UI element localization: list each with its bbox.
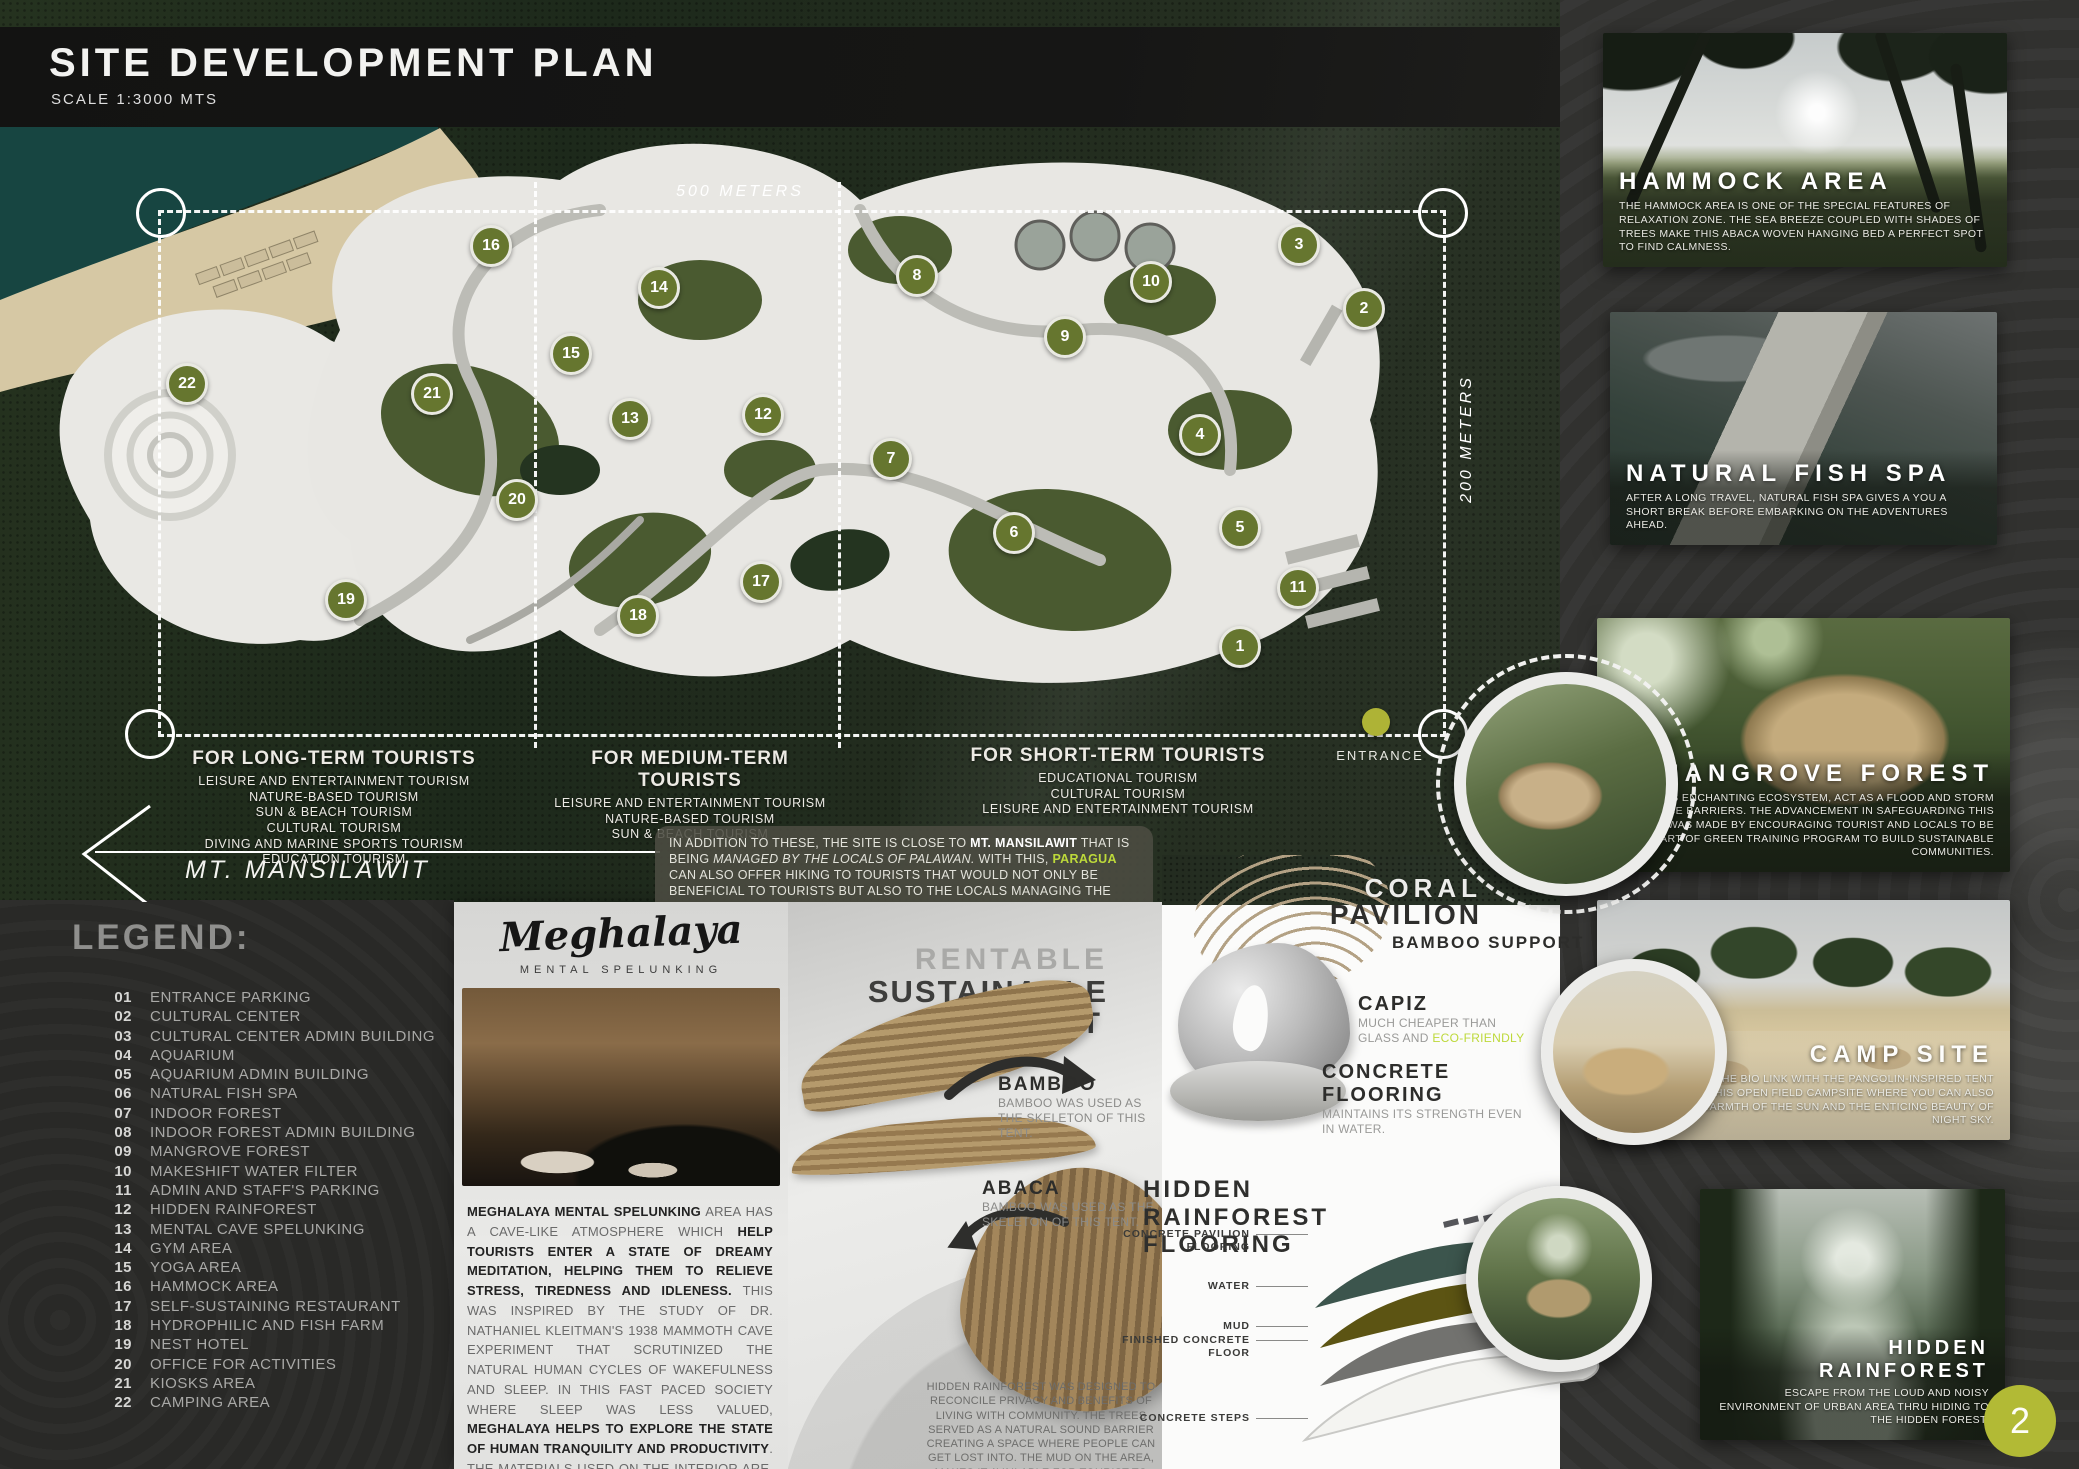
zone-tourism-line: NATURE-BASED TOURISM: [540, 812, 840, 828]
legend-title: LEGEND:: [72, 918, 251, 958]
material-name: CAPIZ: [1358, 993, 1538, 1016]
survey-corner-marker: [136, 188, 186, 238]
zone-title: FOR LONG-TERM TOURISTS: [184, 748, 484, 770]
layer-label: WATER: [1100, 1280, 1250, 1293]
dimension-label-top: 500 METERS: [640, 183, 840, 201]
bamboo-support-label: BAMBOO SUPPORT: [1392, 933, 1584, 953]
material-name: CONCRETE FLOORING: [1322, 1061, 1522, 1107]
legend-item-number: 08: [0, 1123, 132, 1142]
coral-title-top: CORAL: [1330, 875, 1482, 901]
legend-item: 12 HIDDEN RAINFOREST: [0, 1200, 454, 1219]
layer-label: CONCRETE STEPS: [1100, 1412, 1250, 1425]
legend-item: 06 NATURAL FISH SPA: [0, 1084, 454, 1103]
plan-number-marker: 6: [993, 512, 1035, 554]
camp-tent-inset-photo: [1541, 959, 1727, 1145]
zone-tourism-line: LEISURE AND ENTERTAINMENT TOURISM: [184, 774, 484, 790]
legend-item-label: INDOOR FOREST ADMIN BUILDING: [132, 1123, 415, 1142]
legend-item-number: 21: [0, 1374, 132, 1393]
panel-title: NATURAL FISH SPA: [1626, 460, 1981, 488]
zone-title: FOR SHORT-TERM TOURISTS: [968, 745, 1268, 767]
legend-item-number: 17: [0, 1297, 132, 1316]
legend-item: 10 MAKESHIFT WATER FILTER: [0, 1162, 454, 1181]
dimension-label-right: 200 METERS: [1458, 364, 1476, 514]
legend-item-number: 20: [0, 1355, 132, 1374]
zone-tourism-line: CULTURAL TOURISM: [184, 821, 484, 837]
meghalaya-script-title: Meghalaya: [453, 904, 788, 963]
capiz-label: CAPIZ MUCH CHEAPER THAN GLASS AND ECO-FR…: [1358, 993, 1538, 1046]
legend-item-number: 16: [0, 1277, 132, 1296]
plan-number-marker: 11: [1277, 567, 1319, 609]
legend-item-label: HYDROPHILIC AND FISH FARM: [132, 1316, 384, 1335]
legend-list: 01 ENTRANCE PARKING 02 CULTURAL CENTER 0…: [0, 988, 454, 1413]
site-development-poster: 500 METERS 200 METERS 1 2 3 4 5 6 7 8 9 …: [0, 0, 2079, 1469]
legend-item-number: 02: [0, 1007, 132, 1026]
legend-item: 15 YOGA AREA: [0, 1258, 454, 1277]
survey-corner-marker: [125, 709, 175, 759]
bamboo-material-label: BAMBOO BAMBOO WAS USED AS THE SKELETON O…: [998, 1074, 1162, 1141]
panel-caption: HIDDEN RAINFOREST ESCAPE FROM THE LOUD A…: [1700, 1327, 2005, 1440]
legend-item-label: SELF-SUSTAINING RESTAURANT: [132, 1297, 401, 1316]
layer-label: CONCRETE PAVILION FLOORING: [1100, 1228, 1250, 1254]
legend-item: 22 CAMPING AREA: [0, 1393, 454, 1412]
legend-item: 09 MANGROVE FOREST: [0, 1142, 454, 1161]
mountain-arrow-icon: [70, 796, 160, 902]
legend-item-label: GYM AREA: [132, 1239, 232, 1258]
site-plan-map: 500 METERS 200 METERS 1 2 3 4 5 6 7 8 9 …: [0, 0, 1560, 902]
plan-number-marker: 14: [638, 267, 680, 309]
legend-item-number: 03: [0, 1027, 132, 1046]
mountain-label: MT. MANSILAWIT: [185, 856, 430, 885]
legend-item-number: 18: [0, 1316, 132, 1335]
plan-number-marker: 10: [1130, 261, 1172, 303]
panel-caption: HAMMOCK AREA THE HAMMOCK AREA IS ONE OF …: [1603, 158, 2007, 267]
material-caption: MUCH CHEAPER THAN GLASS AND ECO-FRIENDLY: [1358, 1016, 1538, 1046]
legend-item-label: NEST HOTEL: [132, 1335, 249, 1354]
legend-item-label: MANGROVE FOREST: [132, 1142, 310, 1161]
legend-item: 17 SELF-SUSTAINING RESTAURANT: [0, 1297, 454, 1316]
legend-item-label: AQUARIUM ADMIN BUILDING: [132, 1065, 369, 1084]
hidden-rainforest-panel: HIDDEN RAINFOREST ESCAPE FROM THE LOUD A…: [1700, 1189, 2005, 1440]
legend-item: 02 CULTURAL CENTER: [0, 1007, 454, 1026]
legend-item-label: CAMPING AREA: [132, 1393, 270, 1412]
legend-panel: LEGEND: 01 ENTRANCE PARKING 02 CULTURAL …: [0, 900, 454, 1469]
legend-item-label: OFFICE FOR ACTIVITIES: [132, 1355, 336, 1374]
legend-item-label: HAMMOCK AREA: [132, 1277, 279, 1296]
legend-item-label: YOGA AREA: [132, 1258, 241, 1277]
plan-number-marker: 15: [550, 333, 592, 375]
layer-label: MUD: [1100, 1320, 1250, 1333]
legend-item: 21 KIOSKS AREA: [0, 1374, 454, 1393]
tent-title-line: RENTABLE: [868, 944, 1108, 976]
legend-item-number: 13: [0, 1220, 132, 1239]
zone-tourism-line: SUN & BEACH TOURISM: [184, 805, 484, 821]
legend-item-label: NATURAL FISH SPA: [132, 1084, 298, 1103]
scale-label: SCALE 1:3000 MTS: [51, 91, 218, 108]
material-name: BAMBOO: [998, 1074, 1162, 1096]
meghalaya-card: Meghalaya MENTAL SPELUNKING MEGHALAYA ME…: [454, 902, 788, 1469]
zone-long-term: FOR LONG-TERM TOURISTS LEISURE AND ENTER…: [184, 748, 484, 868]
layer-label: FINISHED CONCRETE FLOOR: [1100, 1334, 1250, 1360]
legend-item-label: MAKESHIFT WATER FILTER: [132, 1162, 358, 1181]
panel-caption: NATURAL FISH SPA AFTER A LONG TRAVEL, NA…: [1610, 450, 1997, 545]
zone-short-term: FOR SHORT-TERM TOURISTS EDUCATIONAL TOUR…: [968, 745, 1268, 818]
plan-number-marker: 4: [1179, 414, 1221, 456]
legend-item: 07 INDOOR FOREST: [0, 1104, 454, 1123]
legend-item: 20 OFFICE FOR ACTIVITIES: [0, 1355, 454, 1374]
meghalaya-interior-photo: [462, 988, 780, 1186]
plan-number-marker: 3: [1278, 224, 1320, 266]
legend-item-number: 01: [0, 988, 132, 1007]
legend-item: 18 HYDROPHILIC AND FISH FARM: [0, 1316, 454, 1335]
legend-item-number: 11: [0, 1181, 132, 1200]
panel-text: ESCAPE FROM THE LOUD AND NOISY ENVIRONME…: [1716, 1387, 1989, 1428]
panel-title: HIDDEN RAINFOREST: [1716, 1337, 1989, 1383]
legend-item: 08 INDOOR FOREST ADMIN BUILDING: [0, 1123, 454, 1142]
plan-number-marker: 16: [470, 225, 512, 267]
zone-tourism-line: CULTURAL TOURISM: [968, 787, 1268, 803]
meghalaya-subtitle: MENTAL SPELUNKING: [454, 964, 788, 976]
zone-tourism-line: LEISURE AND ENTERTAINMENT TOURISM: [540, 796, 840, 812]
concrete-flooring-label: CONCRETE FLOORING MAINTAINS ITS STRENGTH…: [1322, 1061, 1522, 1137]
legend-item: 19 NEST HOTEL: [0, 1335, 454, 1354]
legend-item-label: HIDDEN RAINFOREST: [132, 1200, 317, 1219]
legend-item-number: 19: [0, 1335, 132, 1354]
legend-item: 16 HAMMOCK AREA: [0, 1277, 454, 1296]
legend-item-number: 12: [0, 1200, 132, 1219]
plan-number-marker: 7: [870, 438, 912, 480]
forest-pavilion-inset-photo: [1466, 1186, 1652, 1372]
zone-divider-line: [534, 182, 537, 748]
panel-text: THE HAMMOCK AREA IS ONE OF THE SPECIAL F…: [1619, 200, 1991, 255]
title-bar: SITE DEVELOPMENT PLAN SCALE 1:3000 MTS: [0, 27, 1560, 127]
legend-item-label: ENTRANCE PARKING: [132, 988, 311, 1007]
zone-divider-line: [838, 182, 841, 748]
meghalaya-description: MEGHALAYA MENTAL SPELUNKING AREA HAS A C…: [467, 1202, 773, 1469]
legend-item-number: 22: [0, 1393, 132, 1412]
coral-pavilion-title: CORAL PAVILION: [1330, 875, 1482, 929]
legend-item-number: 05: [0, 1065, 132, 1084]
natural-fish-spa-panel: NATURAL FISH SPA AFTER A LONG TRAVEL, NA…: [1610, 312, 1997, 545]
legend-item-label: KIOSKS AREA: [132, 1374, 256, 1393]
material-caption: MAINTAINS ITS STRENGTH EVEN IN WATER.: [1322, 1107, 1522, 1137]
plan-number-marker: 17: [740, 561, 782, 603]
legend-item-label: CULTURAL CENTER: [132, 1007, 301, 1026]
legend-item-number: 07: [0, 1104, 132, 1123]
legend-item: 01 ENTRANCE PARKING: [0, 988, 454, 1007]
coral-title-bottom: PAVILION: [1330, 901, 1482, 929]
panel-title: HAMMOCK AREA: [1619, 168, 1991, 196]
plan-number-marker: 21: [411, 373, 453, 415]
legend-item-number: 09: [0, 1142, 132, 1161]
legend-item-number: 06: [0, 1084, 132, 1103]
mangrove-pavilion-inset-photo: [1454, 672, 1678, 896]
legend-item-label: CULTURAL CENTER ADMIN BUILDING: [132, 1027, 435, 1046]
plan-number-marker: 12: [742, 394, 784, 436]
legend-item-number: 14: [0, 1239, 132, 1258]
legend-item-label: ADMIN AND STAFF'S PARKING: [132, 1181, 380, 1200]
legend-item-label: INDOOR FOREST: [132, 1104, 282, 1123]
material-name: BAMBOO SUPPORT: [1392, 933, 1584, 953]
plan-number-marker: 1: [1219, 626, 1261, 668]
zone-tourism-line: DIVING AND MARINE SPORTS TOURISM: [184, 837, 484, 853]
legend-item-label: MENTAL CAVE SPELUNKING: [132, 1220, 365, 1239]
plan-number-marker: 9: [1044, 316, 1086, 358]
legend-item: 13 MENTAL CAVE SPELUNKING: [0, 1220, 454, 1239]
legend-item: 14 GYM AREA: [0, 1239, 454, 1258]
legend-item-number: 04: [0, 1046, 132, 1065]
plan-number-marker: 22: [166, 363, 208, 405]
legend-item: 04 AQUARIUM: [0, 1046, 454, 1065]
site-note: IN ADDITION TO THESE, THE SITE IS CLOSE …: [655, 826, 1153, 902]
page-number-badge: 2: [1984, 1385, 2056, 1457]
zone-tourism-line: EDUCATIONAL TOURISM: [968, 771, 1268, 787]
hammock-area-panel: HAMMOCK AREA THE HAMMOCK AREA IS ONE OF …: [1603, 33, 2007, 267]
legend-item-label: AQUARIUM: [132, 1046, 235, 1065]
plan-number-marker: 2: [1343, 288, 1385, 330]
legend-item: 05 AQUARIUM ADMIN BUILDING: [0, 1065, 454, 1084]
material-caption: BAMBOO WAS USED AS THE SKELETON OF THIS …: [998, 1096, 1162, 1141]
plan-number-marker: 13: [609, 398, 651, 440]
panel-text: AFTER A LONG TRAVEL, NATURAL FISH SPA GI…: [1626, 492, 1981, 533]
plan-number-marker: 18: [617, 595, 659, 637]
zone-tourism-line: NATURE-BASED TOURISM: [184, 790, 484, 806]
plan-number-marker: 5: [1219, 507, 1261, 549]
zone-title: FOR MEDIUM-TERM TOURISTS: [540, 748, 840, 792]
page-title: SITE DEVELOPMENT PLAN: [49, 41, 658, 86]
survey-corner-marker: [1418, 188, 1468, 238]
legend-item-number: 15: [0, 1258, 132, 1277]
legend-item: 03 CULTURAL CENTER ADMIN BUILDING: [0, 1027, 454, 1046]
plan-number-marker: 8: [896, 255, 938, 297]
zone-tourism-line: LEISURE AND ENTERTAINMENT TOURISM: [968, 802, 1268, 818]
legend-item-number: 10: [0, 1162, 132, 1181]
entrance-dot: [1362, 708, 1390, 736]
plan-number-marker: 20: [496, 479, 538, 521]
entrance-label: ENTRANCE: [1310, 748, 1450, 763]
legend-item: 11 ADMIN AND STAFF'S PARKING: [0, 1181, 454, 1200]
concrete-floor-render: [1170, 1061, 1346, 1121]
plan-number-marker: 19: [325, 579, 367, 621]
